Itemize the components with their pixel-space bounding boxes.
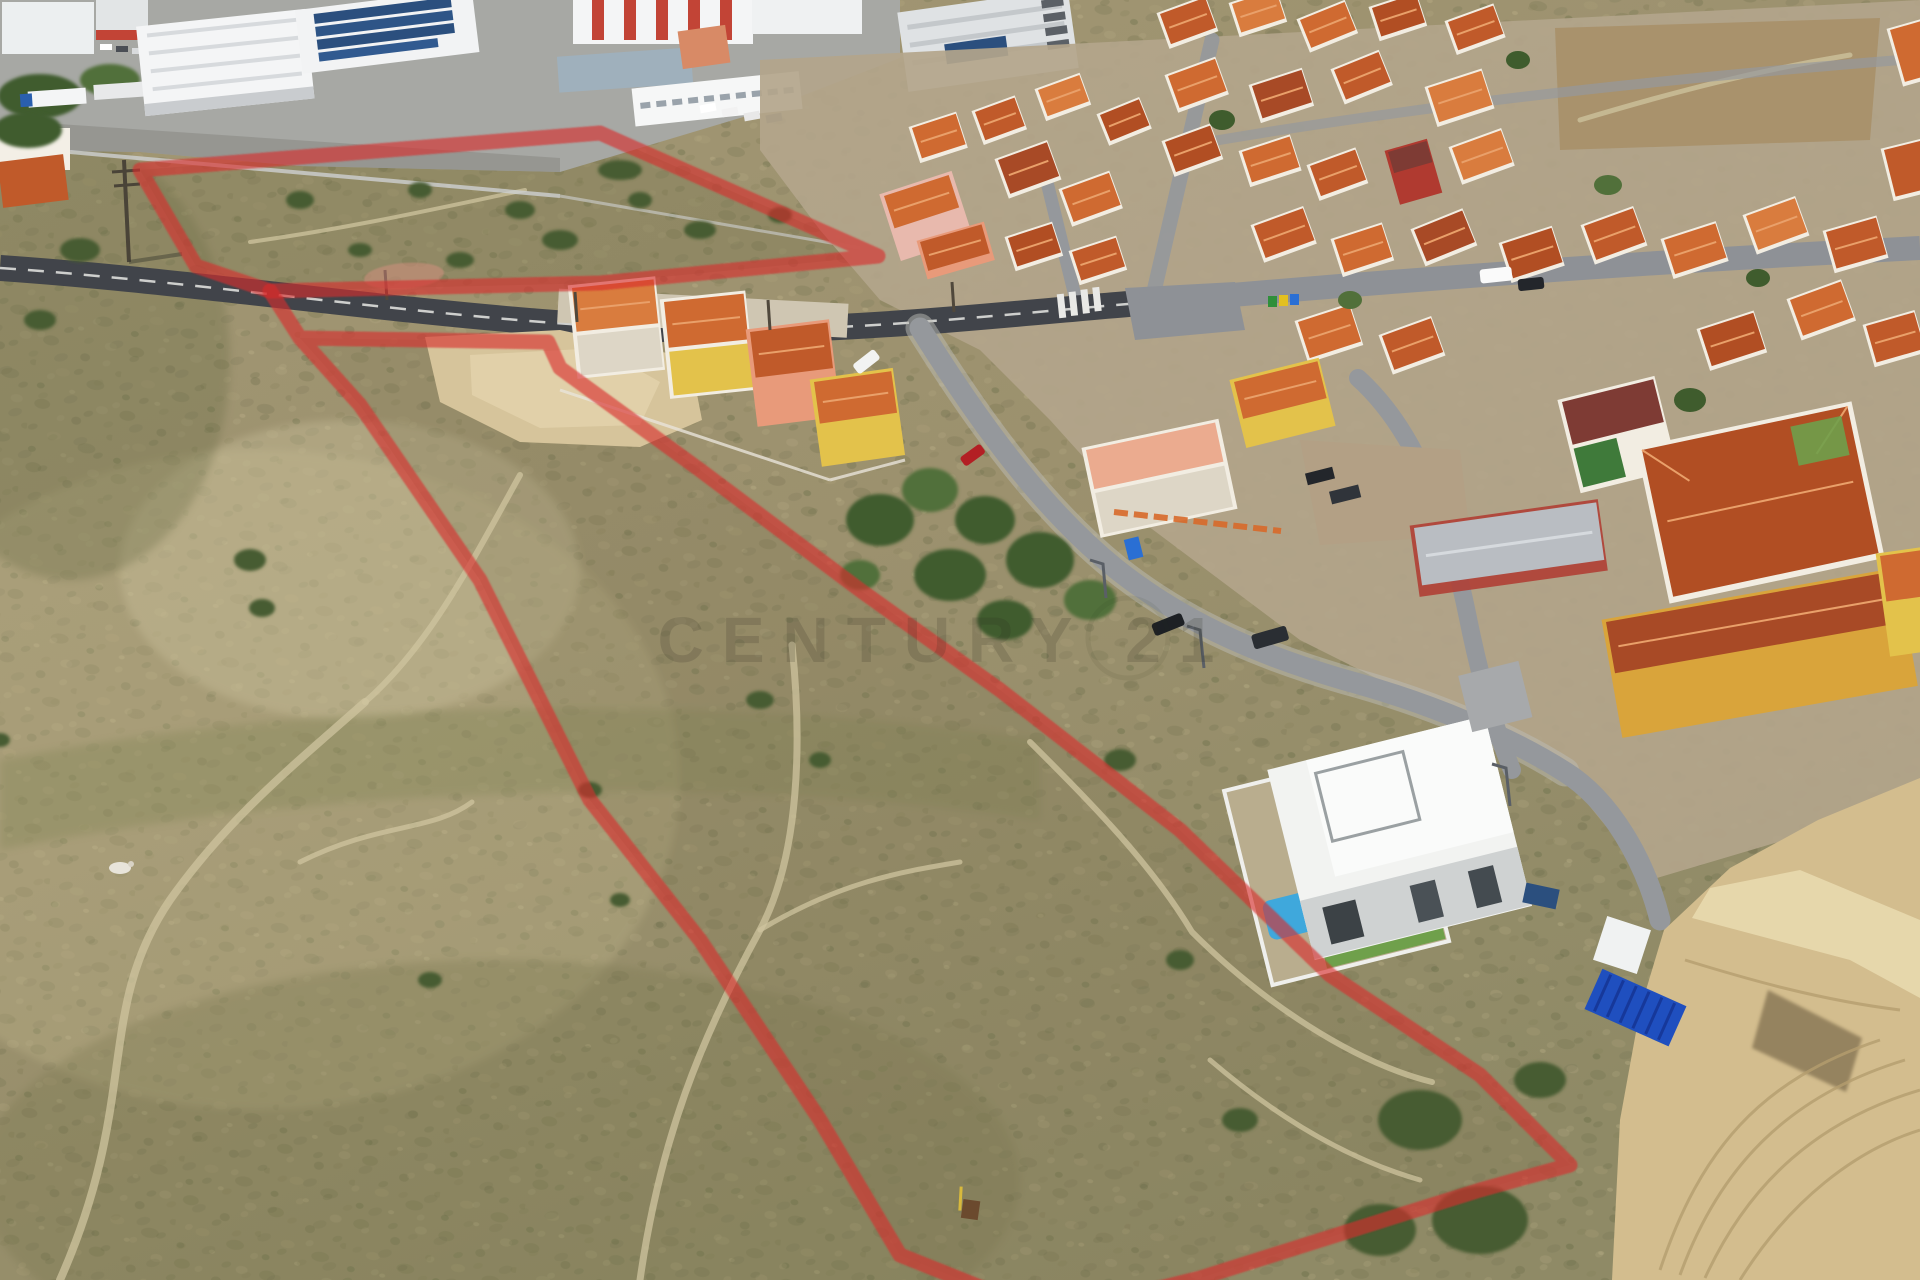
tree [1209,110,1235,130]
warehouse-roof [2,2,94,54]
townhouse [660,290,756,398]
apartment-salmon-roof [678,25,731,69]
warehouse-a [136,9,314,116]
aerial-photo: CENTURY 21 [0,0,1920,1280]
watermark: CENTURY 21 [658,598,1233,678]
tree [1506,51,1530,69]
watermark-text: CENTURY 21 [658,604,1233,676]
tree [1594,175,1622,195]
tree [1674,388,1706,412]
left-edge-house [0,112,70,208]
yellow-house [810,368,905,467]
tree [1746,269,1770,287]
aerial-photo-canvas: CENTURY 21 [0,0,1920,1280]
townhouse [568,276,665,379]
tree [1338,291,1362,309]
